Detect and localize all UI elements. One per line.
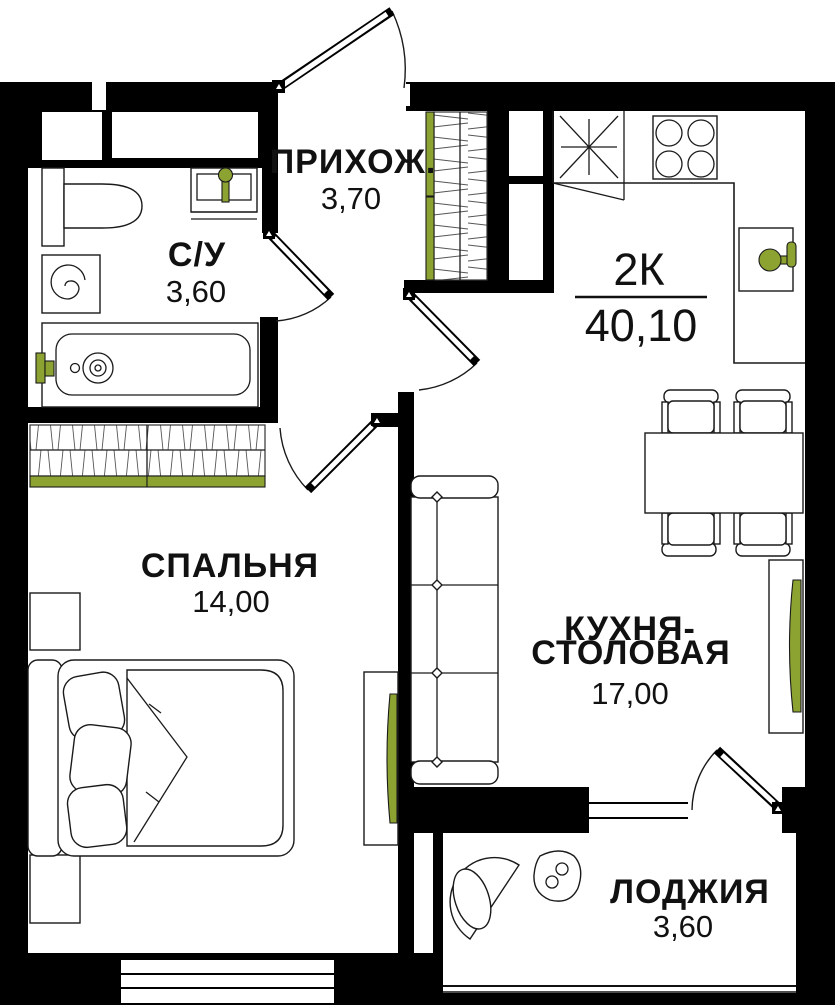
bedroom-door	[280, 414, 383, 490]
kitchen-area: 17,00	[591, 676, 669, 711]
bathroom-area: 3,60	[166, 274, 226, 309]
left-outer-wall	[0, 82, 28, 958]
dining-table	[645, 433, 803, 513]
loggia-label: ЛОДЖИЯ	[610, 873, 770, 911]
kitchen-duct-lower	[509, 186, 543, 280]
vent-shaft	[553, 111, 624, 200]
apartment-type: 2К	[613, 244, 664, 295]
wardrobe-door	[147, 476, 265, 487]
bathroom-duct-right	[112, 112, 258, 158]
wardrobe-door	[30, 476, 147, 487]
floor-plan-page: ПРИХОЖ. 3,70 С/У 3,60 СПАЛЬНЯ 14,00 КУХН…	[0, 0, 835, 1005]
loggia-left-wall	[433, 833, 443, 998]
dining-chair	[734, 513, 792, 556]
hallway-bottom-wall	[404, 280, 554, 293]
entrance-door	[272, 11, 405, 93]
nightstand	[30, 855, 80, 923]
bathroom-wall-stub	[260, 317, 278, 420]
loggia-side-table	[534, 851, 581, 901]
toilet	[42, 168, 142, 246]
kitchen-loggia-wall	[413, 787, 589, 833]
floor-plan: ПРИХОЖ. 3,70 С/У 3,60 СПАЛЬНЯ 14,00 КУХН…	[0, 0, 835, 1005]
bathroom-sink	[191, 168, 257, 219]
bedroom-wardrobe	[30, 425, 265, 487]
loggia-furniture	[446, 851, 580, 939]
loggia-right-wall	[796, 833, 835, 995]
loggia-glazing	[443, 986, 796, 992]
bedroom-window	[121, 960, 334, 1003]
right-outer-wall	[805, 82, 835, 835]
kitchen-door	[403, 288, 477, 390]
nightstand	[30, 593, 80, 650]
hall-kitchen-wall	[487, 110, 509, 282]
kitchen-label-line2: СТОЛОВАЯ	[531, 634, 730, 672]
bathroom-bottom-wall	[28, 407, 278, 423]
bathtub-faucet	[36, 353, 45, 383]
bedroom-label: СПАЛЬНЯ	[141, 547, 319, 585]
hallway-wardrobe	[426, 112, 487, 280]
apartment-info: 2К 40,10	[575, 244, 707, 351]
bathroom-door	[263, 227, 331, 321]
hallway-area: 3,70	[321, 181, 381, 216]
bedroom-tv-unit	[364, 672, 398, 845]
bedroom-area: 14,00	[192, 584, 270, 619]
loggia-area: 3,60	[653, 909, 713, 944]
loggia-bottom-wall	[423, 993, 835, 1005]
kitchen-duct-upper	[509, 112, 543, 174]
blanket	[127, 670, 283, 846]
vent-star-icon	[560, 116, 618, 178]
apartment-area: 40,10	[585, 300, 698, 351]
hallway-label: ПРИХОЖ.	[270, 143, 437, 181]
bathtub	[36, 323, 258, 407]
tv-icon	[790, 580, 802, 712]
washing-machine	[42, 255, 100, 313]
sofa	[411, 476, 498, 784]
kitchen-sink	[739, 228, 796, 291]
kitchen-tv-unit	[769, 560, 803, 733]
bathroom-duct-left	[42, 112, 102, 160]
dining-chair	[662, 513, 720, 556]
headboard	[28, 660, 62, 856]
dining-chair	[662, 390, 720, 433]
dining-chair	[734, 390, 792, 433]
kitchen-window	[589, 789, 688, 833]
bathroom-label: С/У	[168, 236, 226, 274]
dining-set	[645, 390, 803, 556]
stove	[653, 116, 717, 179]
pillow	[66, 783, 129, 849]
loggia-armchair	[446, 858, 519, 939]
wardrobe-door	[426, 197, 434, 280]
tv-icon	[387, 694, 397, 823]
balcony-door	[692, 750, 784, 814]
bed	[28, 660, 294, 856]
